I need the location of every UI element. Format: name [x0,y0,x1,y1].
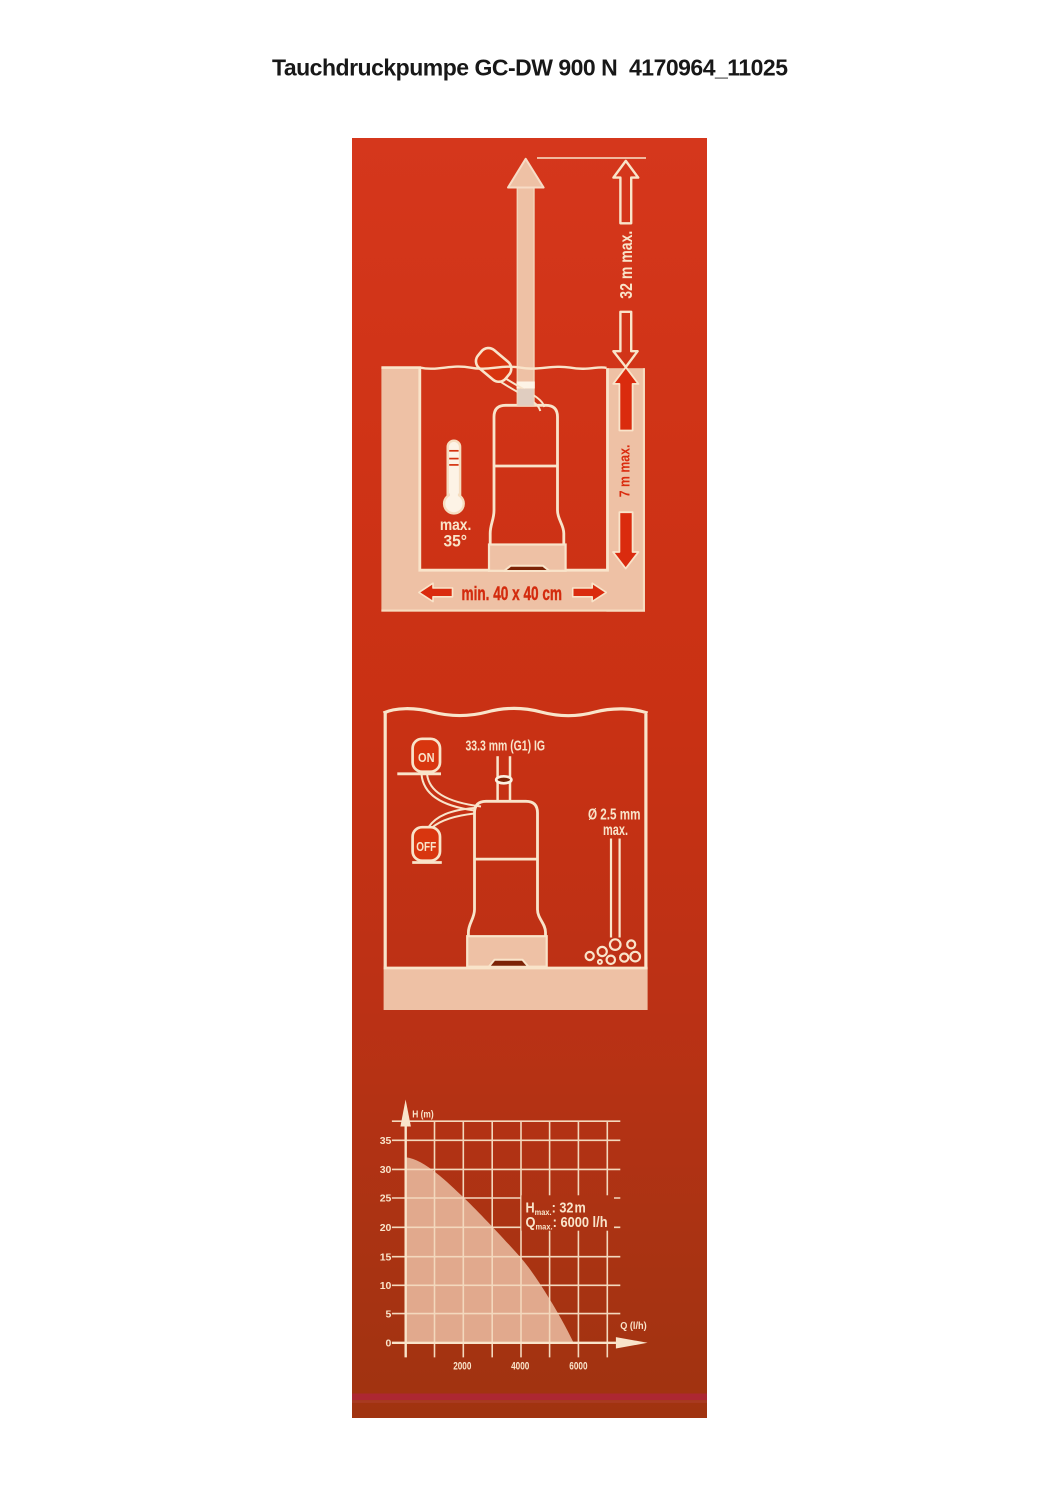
svg-text:max.: max. [440,517,472,534]
svg-text:35°: 35° [443,533,467,551]
svg-text:Ø 2.5 mm: Ø 2.5 mm [588,807,641,824]
svg-text:33.3 mm (G1) IG: 33.3 mm (G1) IG [466,738,546,755]
svg-text:max.: max. [603,822,628,839]
svg-text:5: 5 [386,1308,392,1320]
svg-text:7 m max.: 7 m max. [617,445,633,498]
svg-text:min. 40 x 40 cm: min. 40 x 40 cm [462,583,563,605]
svg-text:OFF: OFF [416,840,436,854]
svg-text:32 m max.: 32 m max. [616,231,636,299]
svg-text:15: 15 [380,1251,392,1263]
svg-text:6000: 6000 [569,1360,587,1372]
svg-text:10: 10 [380,1280,392,1292]
svg-text:30: 30 [380,1164,392,1176]
svg-text:Q (l/h): Q (l/h) [620,1320,647,1332]
svg-text:2000: 2000 [453,1360,471,1372]
svg-text:4000: 4000 [511,1360,529,1372]
svg-text:H (m): H (m) [412,1109,434,1121]
svg-text:ON: ON [418,750,435,765]
svg-text:0: 0 [386,1338,392,1350]
svg-text:35: 35 [380,1135,392,1147]
svg-text:Tauchdruckpumpe GC-DW 900 N 4: Tauchdruckpumpe GC-DW 900 N 4170964_1102… [272,54,788,80]
svg-text:20: 20 [380,1222,392,1234]
svg-text:25: 25 [380,1193,392,1205]
